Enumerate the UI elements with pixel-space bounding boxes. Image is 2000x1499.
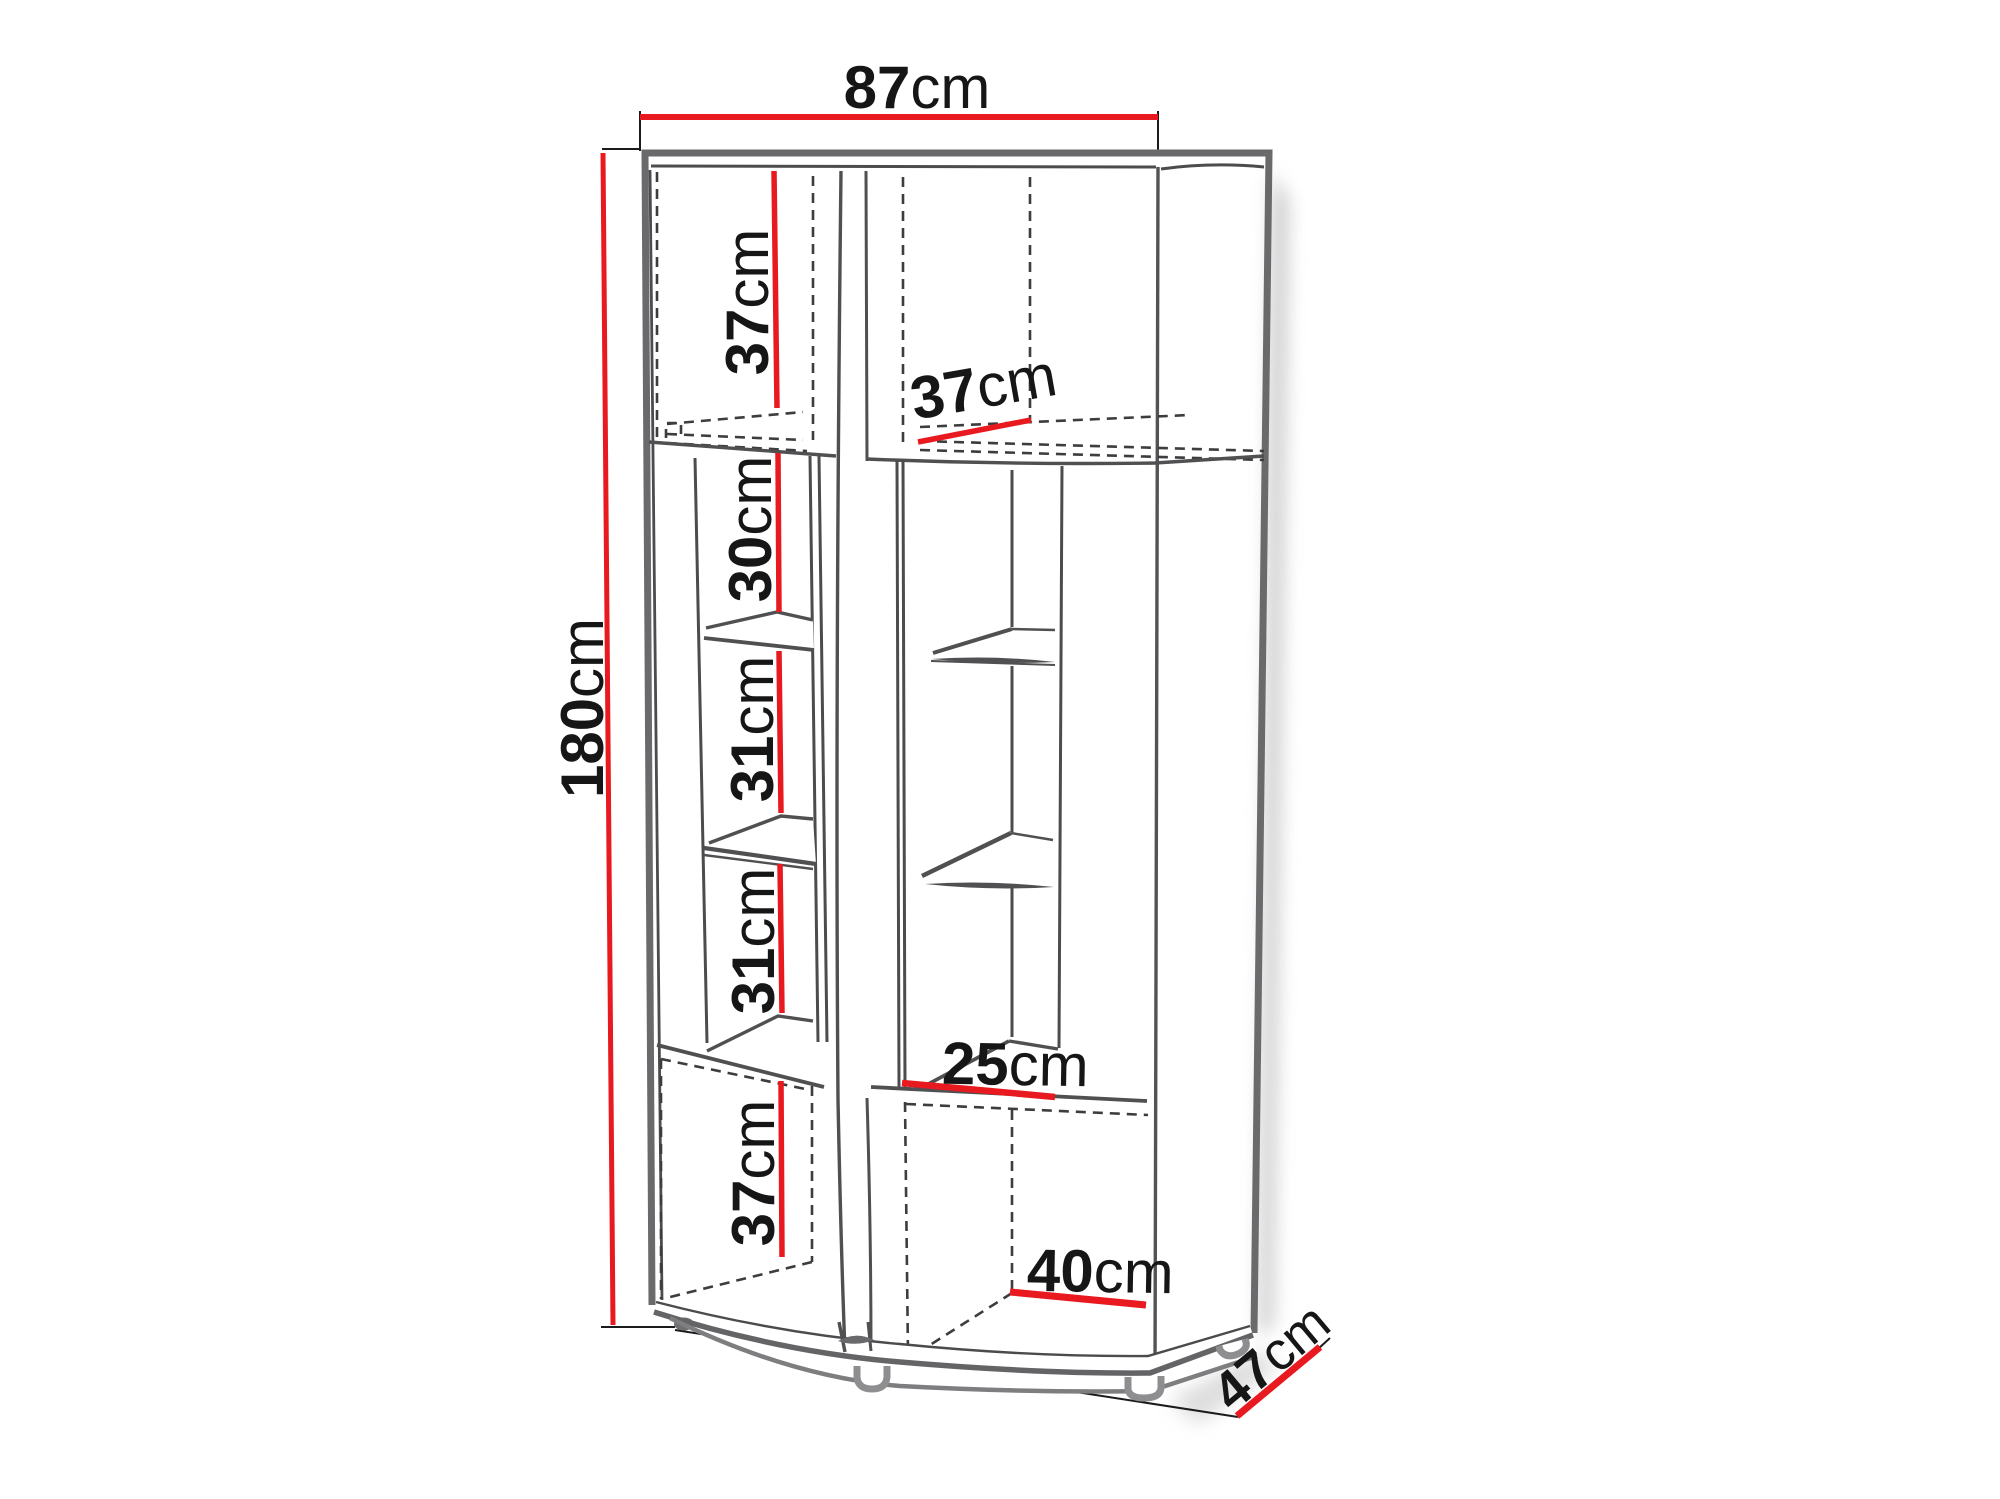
- svg-text:37cm: 37cm: [720, 1100, 787, 1247]
- svg-text:180cm: 180cm: [549, 618, 616, 798]
- svg-text:37cm: 37cm: [714, 229, 781, 376]
- svg-text:87cm: 87cm: [844, 54, 991, 121]
- svg-text:31cm: 31cm: [719, 656, 786, 803]
- svg-text:40cm: 40cm: [1026, 1237, 1174, 1307]
- svg-text:31cm: 31cm: [720, 868, 787, 1015]
- svg-text:25cm: 25cm: [941, 1030, 1089, 1100]
- svg-text:30cm: 30cm: [717, 456, 784, 603]
